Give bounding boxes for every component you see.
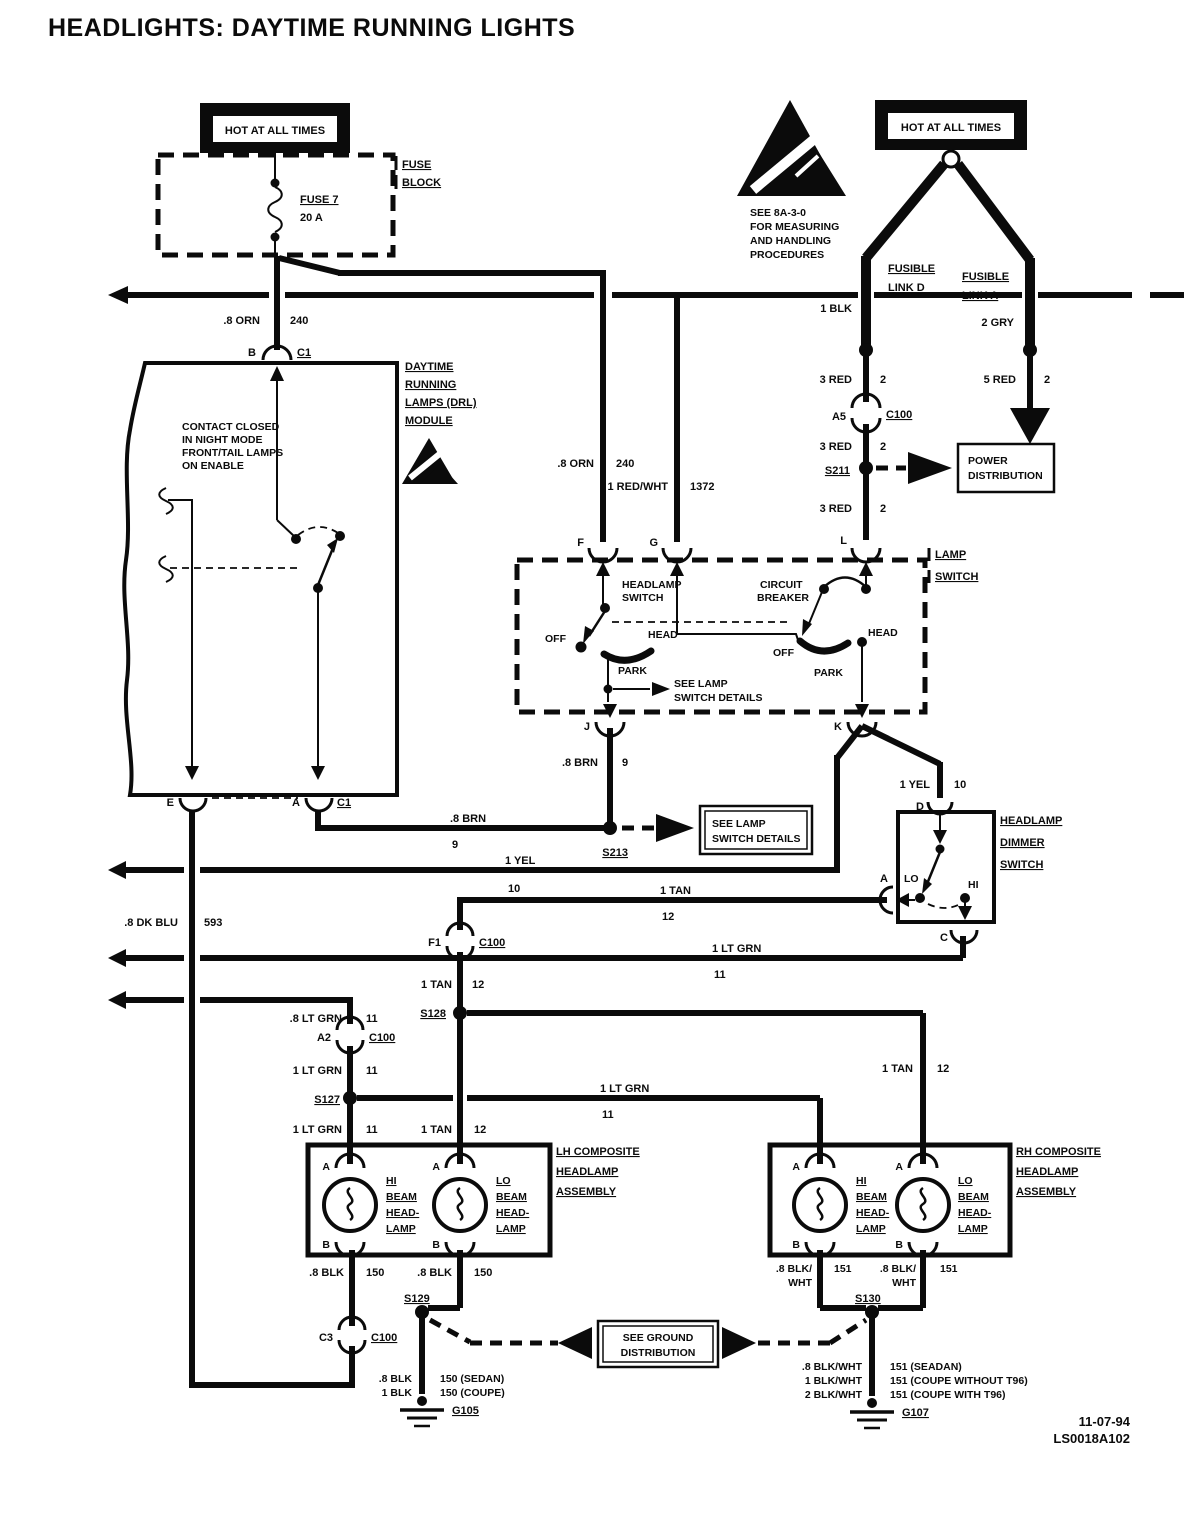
wire-tan: 1 TAN 12 F1 C100 1 TAN 12 S128 1 TAN 12 …	[420, 885, 949, 1164]
svg-text:PROCEDURES: PROCEDURES	[750, 249, 824, 261]
svg-text:SEE 8A-3-0: SEE 8A-3-0	[750, 207, 806, 219]
svg-text:LAMP: LAMP	[958, 1223, 988, 1235]
splice-label: S130	[855, 1293, 881, 1305]
esd-note: SEE 8A-3-0 FOR MEASURING AND HANDLING PR…	[750, 207, 839, 261]
wiring-diagram-page: HEADLIGHTS: DAYTIME RUNNING LIGHTS HOT A…	[0, 0, 1184, 1520]
ground-label: G105	[452, 1405, 479, 1417]
splice-label: S213	[602, 847, 628, 859]
wire-label: 151	[940, 1263, 958, 1275]
wire-label: 1 BLK	[382, 1387, 413, 1399]
filament-icon	[818, 1188, 823, 1220]
svg-text:BEAM: BEAM	[856, 1191, 887, 1203]
wire-label: 10	[508, 883, 520, 895]
switch-wiper	[604, 651, 651, 660]
wire-label: 1 YEL	[900, 779, 931, 791]
wire-label: 240	[290, 315, 308, 327]
wire-label: 3 RED	[820, 503, 852, 515]
page-title: HEADLIGHTS: DAYTIME RUNNING LIGHTS	[48, 14, 575, 42]
fuse7-rating: 20 A	[300, 212, 323, 224]
splice-s213	[603, 821, 617, 835]
drl-note: ON ENABLE	[182, 460, 244, 472]
wire-label: 2	[880, 374, 886, 386]
connector-label: K	[834, 721, 842, 733]
fusible-link-a-label: FUSIBLE	[962, 271, 1009, 283]
connector-label: F	[577, 537, 584, 549]
svg-text:DISTRIBUTION: DISTRIBUTION	[968, 470, 1043, 482]
svg-text:HEAD-: HEAD-	[496, 1207, 530, 1219]
svg-text:POWER: POWER	[968, 455, 1008, 467]
drl-module-label: DAYTIME	[405, 361, 454, 373]
wire-label: 1 TAN	[421, 979, 452, 991]
wire-label: 1 BLK	[820, 303, 852, 315]
terminal-label: B	[792, 1239, 800, 1251]
arrow-right-icon	[652, 682, 670, 696]
wire-label: 11	[714, 969, 726, 981]
footer: 11-07-94 LS0018A102	[1053, 1414, 1130, 1446]
ground-distribution-link: SEE GROUND DISTRIBUTION	[430, 1320, 866, 1367]
splice-s128	[453, 1006, 467, 1020]
fuse-block: FUSE BLOCK FUSE 7 20 A	[158, 153, 441, 255]
wire-label: .8 BLK	[417, 1267, 452, 1279]
wire-label: .8 BRN	[562, 757, 598, 769]
wire-label: 2 GRY	[981, 317, 1014, 329]
see-lamp-details-box	[700, 806, 812, 854]
esd-warning-icon	[737, 100, 846, 196]
arrow-right-icon	[656, 814, 694, 842]
hot-left-label: HOT AT ALL TIMES	[225, 125, 325, 137]
connector-label: C3	[319, 1332, 333, 1344]
connector-e-icon	[180, 798, 206, 811]
svg-text:LO: LO	[496, 1175, 511, 1187]
revision-date: 11-07-94	[1079, 1414, 1131, 1429]
dimmer-position-label: LO	[904, 873, 919, 885]
terminal-label: A	[322, 1161, 330, 1173]
connector-label: F1	[428, 937, 441, 949]
wire-label: .8 DK BLU	[124, 917, 178, 929]
wire-yel: 1 YEL 10 1 YEL 10	[108, 726, 966, 895]
arrow-right-icon	[908, 452, 952, 484]
wire-label: 1 TAN	[882, 1063, 913, 1075]
arrow-left-icon	[558, 1327, 592, 1359]
ground-symbol-icon	[850, 1398, 894, 1428]
wire-label: 11	[366, 1065, 378, 1077]
wire-label: 151 (COUPE WITHOUT T96)	[890, 1375, 1028, 1387]
wire-label: .8 ORN	[557, 458, 594, 470]
hot-right-label: HOT AT ALL TIMES	[901, 122, 1001, 134]
wire-label: 11	[366, 1013, 378, 1025]
continuation-arrow-icon	[108, 949, 126, 967]
connector-label: J	[584, 721, 590, 733]
connector-label: C100	[371, 1332, 397, 1344]
wire-label: 150 (COUPE)	[440, 1387, 505, 1399]
wire-label: 5 RED	[984, 374, 1016, 386]
splice-s129	[415, 1305, 429, 1319]
ground-label: G107	[902, 1407, 929, 1419]
wire-label: 150 (SEDAN)	[440, 1373, 504, 1385]
connector-label: A	[292, 797, 300, 809]
splice-s130	[865, 1305, 879, 1319]
wire-label: 2	[1044, 374, 1050, 386]
wire-label: 150	[366, 1267, 384, 1279]
fuse7-label: FUSE 7	[300, 194, 339, 206]
switch-position-label: HEAD	[648, 629, 678, 641]
wire-orn-feed: .8 ORN 240 .8 ORN 240	[223, 241, 634, 542]
filament-icon	[348, 1188, 353, 1220]
svg-text:HEAD-: HEAD-	[958, 1207, 992, 1219]
wire-label: 1372	[690, 481, 714, 493]
dimmer-label: DIMMER	[1000, 837, 1045, 849]
lh-headlamp-assembly: LH COMPOSITE HEADLAMP ASSEMBLY A B HI BE…	[308, 1145, 640, 1256]
connector-label: C1	[297, 347, 311, 359]
connector-label: C100	[479, 937, 505, 949]
continuation-arrow-icon	[108, 991, 126, 1009]
switch-position-label: OFF	[545, 633, 567, 645]
wire-label: 10	[954, 779, 966, 791]
hot-at-all-times-right: HOT AT ALL TIMES	[875, 100, 1027, 167]
wire-label: 2	[880, 503, 886, 515]
wire-label: .8 BLK/WHT	[802, 1361, 863, 1373]
drl-note: CONTACT CLOSED	[182, 421, 280, 433]
svg-text:LAMP: LAMP	[386, 1223, 416, 1235]
svg-text:HEAD-: HEAD-	[386, 1207, 420, 1219]
wire-label: 2	[880, 441, 886, 453]
wire-label: 150	[474, 1267, 492, 1279]
fusible-link-d-label: LINK D	[888, 282, 925, 294]
wire-label: 1 LT GRN	[293, 1065, 342, 1077]
splice-label: S129	[404, 1293, 430, 1305]
arrow-down-icon	[1010, 408, 1050, 444]
lh-assembly-label: LH COMPOSITE	[556, 1146, 640, 1158]
wire-label: .8 LT GRN	[290, 1013, 342, 1025]
splice-label: S127	[314, 1094, 340, 1106]
splice-label: S211	[825, 465, 850, 477]
connector-label: C	[940, 932, 948, 944]
wire-label: 11	[366, 1124, 378, 1136]
switch-position-label: PARK	[814, 667, 843, 679]
fuse-element	[268, 187, 282, 232]
wire-label: 151 (SEADAN)	[890, 1361, 962, 1373]
wire-label: 1 BLK/WHT	[805, 1375, 863, 1387]
wire-label: .8 BLK/	[776, 1263, 812, 1275]
terminal-label: A	[432, 1161, 440, 1173]
svg-text:DISTRIBUTION: DISTRIBUTION	[621, 1347, 696, 1359]
dimmer-outline	[898, 812, 994, 922]
see-lamp-note: SWITCH DETAILS	[674, 692, 762, 704]
connector-label: G	[649, 537, 658, 549]
connector-a-c1-icon	[306, 798, 332, 811]
terminal-label: B	[322, 1239, 330, 1251]
document-code: LS0018A102	[1053, 1431, 1130, 1446]
wire-label: 1 LT GRN	[293, 1124, 342, 1136]
svg-text:LO: LO	[958, 1175, 973, 1187]
rh-assembly-label: ASSEMBLY	[1016, 1186, 1077, 1198]
lamp-switch: LAMP SWITCH F G L HEADLAMP SWITCH OFF HE…	[517, 535, 978, 736]
fusible-link-a-label: LINK A	[962, 290, 998, 302]
svg-text:LAMP: LAMP	[856, 1223, 886, 1235]
svg-text:HEAD-: HEAD-	[856, 1207, 890, 1219]
lh-ground-wiring: .8 BLK 150 C3 C100 .8 BLK 150 S129 .8 BL…	[309, 1250, 505, 1426]
power-distribution-box	[958, 444, 1054, 492]
squiggle-icon	[159, 556, 173, 582]
fusible-links: FUSIBLE LINK D FUSIBLE LINK A 1 BLK 2 GR…	[820, 164, 1037, 357]
fusible-link-d-label: FUSIBLE	[888, 263, 935, 275]
wire-label: WHT	[892, 1277, 916, 1289]
wire-ltgrn: 1 LT GRN 11 .8 LT GRN 11 A2 C100 1 LT GR…	[108, 936, 963, 1164]
svg-text:FOR MEASURING: FOR MEASURING	[750, 221, 839, 233]
splice-s211	[859, 461, 873, 475]
wire-label: .8 ORN	[223, 315, 260, 327]
wire-label: 9	[452, 839, 458, 851]
connector-label: B	[248, 347, 256, 359]
wire-label: 151	[834, 1263, 852, 1275]
continuation-arrow-icon	[108, 861, 126, 879]
connector-label: C100	[886, 409, 912, 421]
lamp-switch-label: SWITCH	[935, 571, 978, 583]
terminal-label: A	[895, 1161, 903, 1173]
wire-label: 1 TAN	[660, 885, 691, 897]
circuit-breaker-label: BREAKER	[757, 592, 809, 604]
filament-icon	[921, 1188, 926, 1220]
drl-note: FRONT/TAIL LAMPS	[182, 447, 283, 459]
splice-s127	[343, 1091, 357, 1105]
connector-label: A5	[832, 411, 846, 423]
switch-wiper	[800, 641, 848, 651]
continuation-arrow-icon	[108, 286, 128, 304]
hot-at-all-times-left: HOT AT ALL TIMES	[200, 103, 350, 153]
dimmer-label: SWITCH	[1000, 859, 1043, 871]
headlamp-switch-label: HEADLAMP	[622, 579, 682, 591]
switch-position-label: OFF	[773, 647, 795, 659]
wire-label: 1 LT GRN	[600, 1083, 649, 1095]
wire-label: 12	[662, 911, 674, 923]
svg-text:AND HANDLING: AND HANDLING	[750, 235, 831, 247]
wire-label: 151 (COUPE WITH T96)	[890, 1389, 1006, 1401]
wire-label: 1 RED/WHT	[608, 481, 669, 493]
wire-label: 11	[602, 1109, 614, 1121]
wire-label: .8 BLK	[309, 1267, 344, 1279]
wire-label: .8 BLK	[379, 1373, 413, 1385]
wire-label: 1 LT GRN	[712, 943, 761, 955]
splice-label: S128	[420, 1008, 446, 1020]
svg-text:SEE GROUND: SEE GROUND	[623, 1332, 694, 1344]
svg-text:LAMP: LAMP	[496, 1223, 526, 1235]
rh-assembly-label: RH COMPOSITE	[1016, 1146, 1101, 1158]
fuse-block-label: BLOCK	[402, 177, 441, 189]
connector-label: A	[880, 873, 888, 885]
switch-position-label: HEAD	[868, 627, 898, 639]
circuit-breaker-label: CIRCUIT	[760, 579, 803, 591]
power-branch: 3 RED 2 A5 C100 3 RED 2 S211 POWER DISTR…	[820, 356, 1054, 540]
fuse-block-label: FUSE	[402, 159, 431, 171]
terminal-label: B	[895, 1239, 903, 1251]
svg-text:HI: HI	[856, 1175, 867, 1187]
svg-text:SEE LAMP: SEE LAMP	[712, 818, 766, 830]
see-lamp-note: SEE LAMP	[674, 678, 728, 690]
wire-label: 12	[474, 1124, 486, 1136]
wire-label: .8 BLK/	[880, 1263, 916, 1275]
esd-warning-small-icon	[402, 438, 458, 484]
lh-assembly-label: ASSEMBLY	[556, 1186, 617, 1198]
drl-module-label: RUNNING	[405, 379, 456, 391]
lh-assembly-label: HEADLAMP	[556, 1166, 618, 1178]
svg-text:BEAM: BEAM	[496, 1191, 527, 1203]
wire-label: 9	[622, 757, 628, 769]
drl-module-label: LAMPS (DRL)	[405, 397, 477, 409]
wire-label: 12	[937, 1063, 949, 1075]
connector-label: A2	[317, 1032, 331, 1044]
wire-label: 3 RED	[820, 374, 852, 386]
svg-text:HI: HI	[386, 1175, 397, 1187]
see-ground-distribution-box	[598, 1321, 718, 1367]
terminal-label: B	[432, 1239, 440, 1251]
headlamp-dimmer-switch: D HEADLAMP DIMMER SWITCH LO HI A C	[880, 801, 1062, 944]
connector-label: E	[167, 797, 174, 809]
wire-label: .8 BRN	[450, 813, 486, 825]
drl-module-label: MODULE	[405, 415, 453, 427]
lamp-switch-label: LAMP	[935, 549, 966, 561]
svg-text:BEAM: BEAM	[958, 1191, 989, 1203]
rh-assembly-label: HEADLAMP	[1016, 1166, 1078, 1178]
switch-position-label: PARK	[618, 665, 647, 677]
connector-label: L	[840, 535, 847, 547]
arrow-right-icon	[722, 1327, 756, 1359]
dimmer-label: HEADLAMP	[1000, 815, 1062, 827]
wire-label: 12	[472, 979, 484, 991]
filament-icon	[458, 1188, 463, 1220]
drl-note: IN NIGHT MODE	[182, 434, 263, 446]
terminal-label: A	[792, 1161, 800, 1173]
wire-label: 3 RED	[820, 441, 852, 453]
wire-label: 593	[204, 917, 222, 929]
connector-l-icon	[852, 548, 880, 562]
headlamp-switch-label: SWITCH	[622, 592, 663, 604]
drl-wiring-diagram: HEADLIGHTS: DAYTIME RUNNING LIGHTS HOT A…	[0, 0, 1184, 1520]
wire-label: 1 YEL	[505, 855, 536, 867]
wire-label: 240	[616, 458, 634, 470]
svg-text:BEAM: BEAM	[386, 1191, 417, 1203]
wire-label: 2 BLK/WHT	[805, 1389, 863, 1401]
dimmer-position-label: HI	[968, 879, 979, 891]
connector-label: C100	[369, 1032, 395, 1044]
svg-text:SWITCH DETAILS: SWITCH DETAILS	[712, 833, 800, 845]
connector-label: C1	[337, 797, 351, 809]
ground-symbol-icon	[400, 1396, 444, 1426]
drl-module: DAYTIME RUNNING LAMPS (DRL) MODULE CONTA…	[124, 346, 477, 811]
wire-label: WHT	[788, 1277, 812, 1289]
rh-ground-wiring: .8 BLK/ WHT 151 .8 BLK/ WHT 151 S130 .8 …	[776, 1250, 1028, 1428]
wire-label: 1 TAN	[421, 1124, 452, 1136]
